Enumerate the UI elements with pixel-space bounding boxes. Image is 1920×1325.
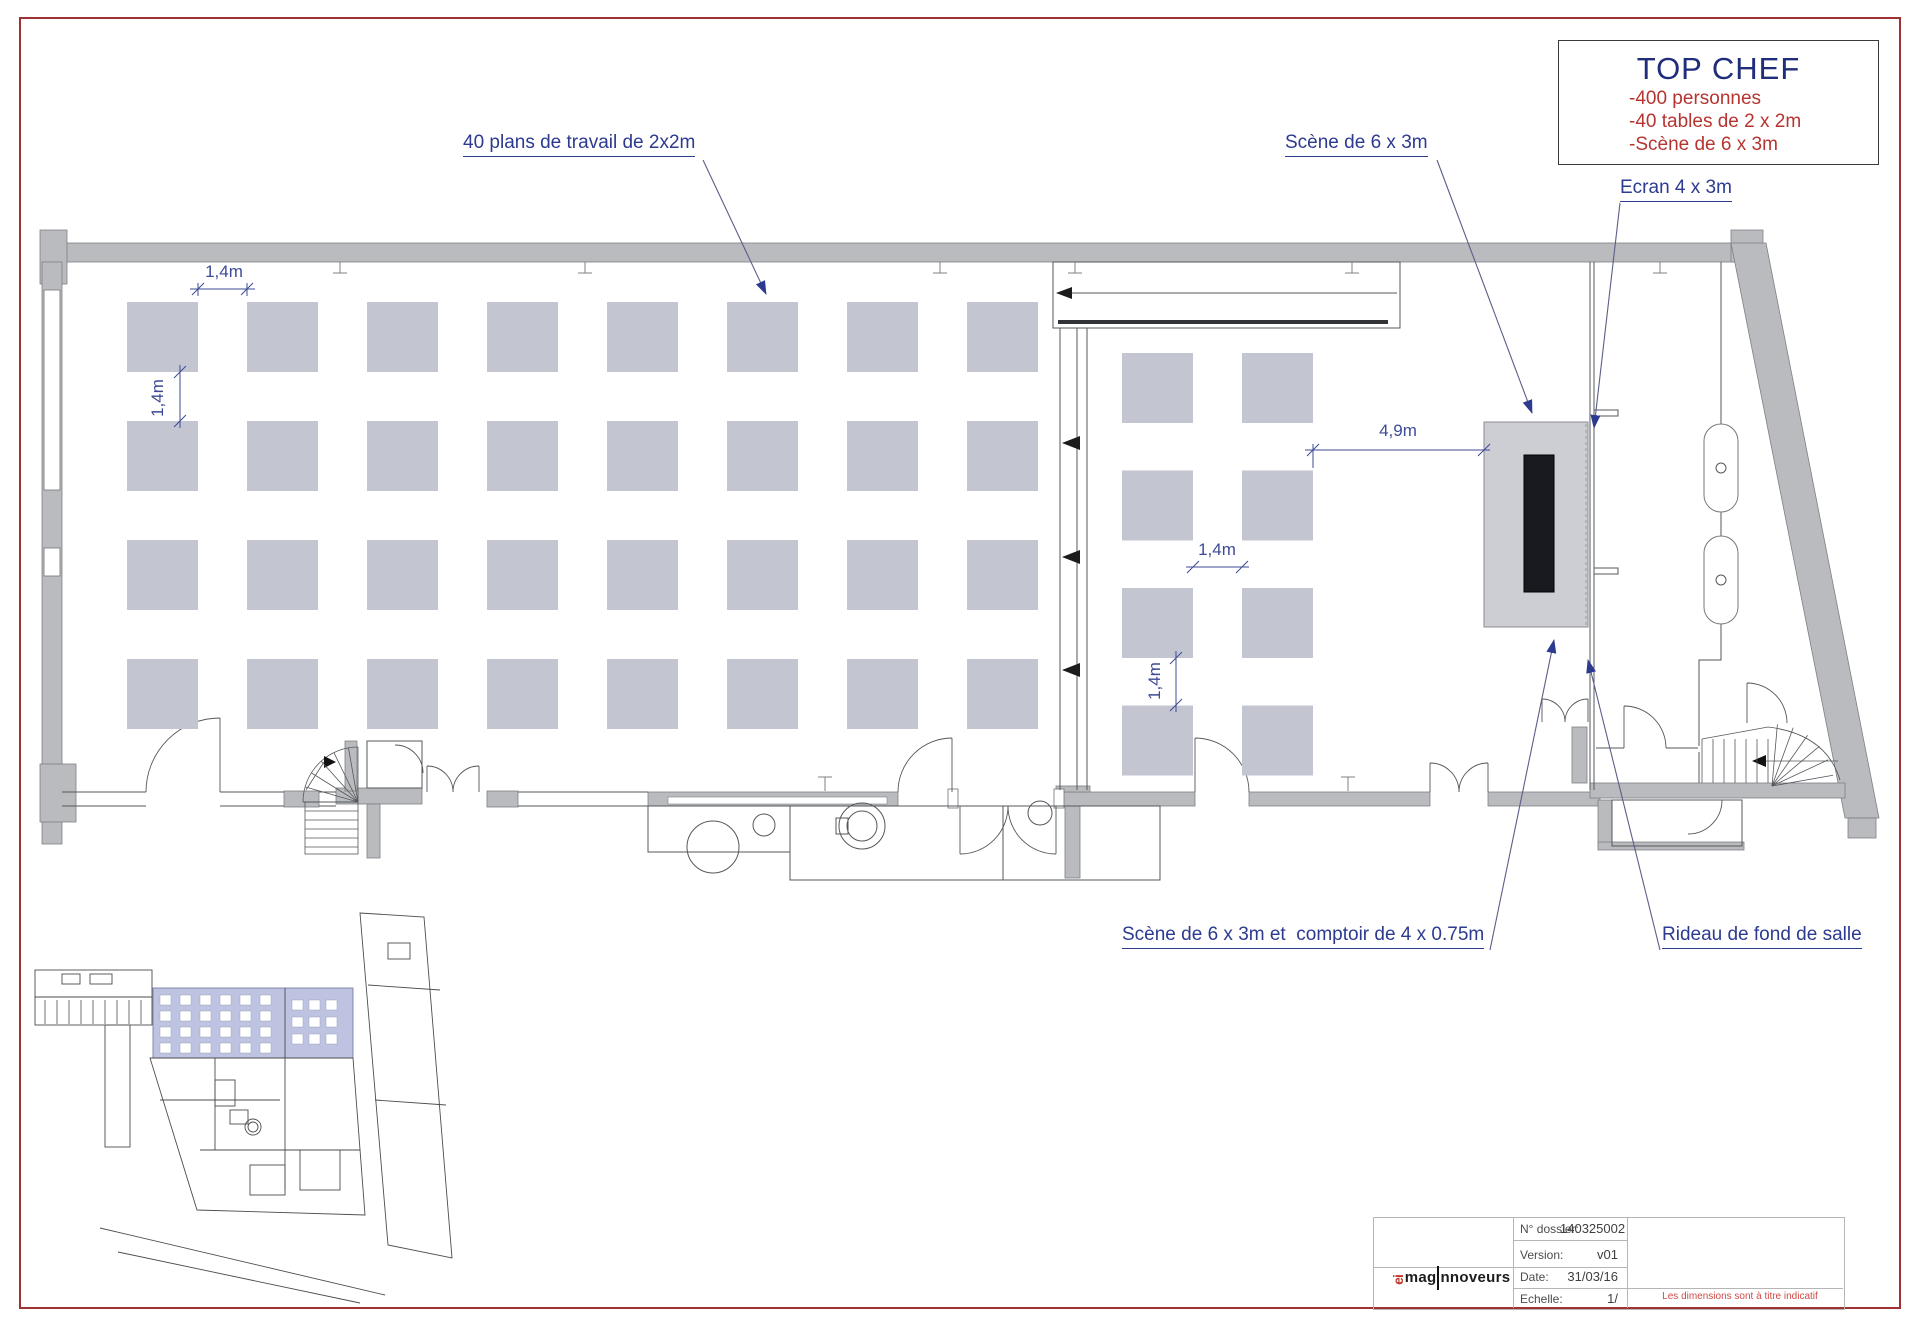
scale-value: 1/ xyxy=(1560,1291,1618,1306)
work-table xyxy=(127,302,198,372)
label-stage: Scène de 6 x 3m xyxy=(1285,132,1428,157)
stage xyxy=(1484,422,1588,627)
mini-table xyxy=(160,1011,171,1021)
wall-hanger xyxy=(1653,262,1667,273)
work-table xyxy=(127,540,198,610)
logo-text-right: nnoveurs xyxy=(1440,1269,1510,1286)
work-table xyxy=(367,659,438,729)
work-table xyxy=(487,540,558,610)
work-table xyxy=(727,659,798,729)
mini-table xyxy=(240,995,251,1005)
mini-table xyxy=(160,1027,171,1037)
mini-table xyxy=(220,995,231,1005)
dim-table-gap-v: 1,4m xyxy=(148,370,168,426)
work-table xyxy=(1122,471,1193,541)
mini-table xyxy=(240,1027,251,1037)
work-table xyxy=(487,659,558,729)
work-table xyxy=(247,302,318,372)
dim-mid-gap-h: 1,4m xyxy=(1191,540,1243,560)
mini-table xyxy=(260,995,271,1005)
work-table xyxy=(1242,353,1313,423)
work-table xyxy=(367,421,438,491)
dossier-value: 140325002 xyxy=(1560,1221,1618,1236)
work-table xyxy=(847,540,918,610)
mini-table xyxy=(292,1000,303,1010)
parking-ticks xyxy=(45,1000,141,1024)
scale-label: Echelle: xyxy=(1520,1292,1563,1306)
mini-table xyxy=(292,1034,303,1044)
work-table xyxy=(1242,706,1313,776)
logo-mark: ei xyxy=(1392,1275,1404,1285)
work-table xyxy=(487,421,558,491)
work-table xyxy=(487,302,558,372)
event-spec-line: -Scène de 6 x 3m xyxy=(1629,133,1878,156)
mini-table xyxy=(180,1027,191,1037)
title-block-divider xyxy=(1513,1217,1514,1308)
mini-table xyxy=(200,1043,211,1053)
screen-rect xyxy=(1524,455,1554,592)
logo-bar xyxy=(1437,1266,1439,1290)
version-label: Version: xyxy=(1520,1248,1563,1262)
wall-hanger xyxy=(818,777,832,791)
mini-table xyxy=(260,1011,271,1021)
work-table xyxy=(1122,706,1193,776)
version-value: v01 xyxy=(1560,1247,1618,1262)
work-table xyxy=(367,302,438,372)
mini-table xyxy=(260,1043,271,1053)
work-table xyxy=(967,659,1038,729)
mini-table xyxy=(326,1034,337,1044)
site-overview-plan xyxy=(35,913,452,1303)
mini-table xyxy=(220,1011,231,1021)
work-table xyxy=(727,540,798,610)
work-table xyxy=(1242,588,1313,658)
wall-hanger xyxy=(933,262,947,273)
dim-table-gap-h: 1,4m xyxy=(198,262,250,282)
work-table xyxy=(967,540,1038,610)
date-label: Date: xyxy=(1520,1270,1549,1284)
mini-table xyxy=(180,995,191,1005)
wall-hanger xyxy=(1341,777,1355,791)
work-table xyxy=(247,421,318,491)
mini-table xyxy=(326,1000,337,1010)
title-block-divider xyxy=(1627,1217,1628,1308)
work-table xyxy=(127,659,198,729)
dim-stage-clearance: 4,9m xyxy=(1372,421,1424,441)
work-table xyxy=(967,421,1038,491)
wall-hanger xyxy=(333,262,347,273)
mini-table xyxy=(240,1011,251,1021)
floor-plan-page: TOP CHEF -400 personnes -40 tables de 2 … xyxy=(0,0,1920,1325)
date-value: 31/03/16 xyxy=(1560,1269,1618,1284)
work-table xyxy=(607,302,678,372)
label-curtain: Rideau de fond de salle xyxy=(1662,924,1862,949)
label-screen: Ecran 4 x 3m xyxy=(1620,177,1732,202)
work-table xyxy=(727,421,798,491)
work-table xyxy=(727,302,798,372)
mini-table xyxy=(200,1027,211,1037)
company-logo: eimagnnoveurs xyxy=(1393,1266,1510,1286)
winder-stair xyxy=(1702,724,1840,786)
mini-table xyxy=(309,1000,320,1010)
work-table-grid xyxy=(127,302,1313,776)
dimensions-disclaimer-note: Les dimensions sont à titre indicatif xyxy=(1633,1291,1847,1302)
label-stage-counter: Scène de 6 x 3m et comptoir de 4 x 0.75m xyxy=(1122,924,1484,949)
event-spec-line: -40 tables de 2 x 2m xyxy=(1629,110,1878,133)
logo-text-left: mag xyxy=(1405,1269,1437,1286)
work-table xyxy=(607,421,678,491)
title-block-divider xyxy=(1513,1240,1627,1241)
mini-table xyxy=(160,995,171,1005)
work-table xyxy=(607,659,678,729)
work-table xyxy=(367,540,438,610)
work-table xyxy=(847,659,918,729)
mini-table xyxy=(292,1017,303,1027)
mini-table xyxy=(160,1043,171,1053)
work-table xyxy=(847,302,918,372)
work-table xyxy=(247,540,318,610)
work-table xyxy=(1122,588,1193,658)
work-table xyxy=(1242,471,1313,541)
mini-table xyxy=(309,1017,320,1027)
mini-table xyxy=(180,1011,191,1021)
dim-mid-gap-v: 1,4m xyxy=(1145,653,1165,709)
work-table xyxy=(127,421,198,491)
event-title: TOP CHEF xyxy=(1559,51,1878,87)
event-title-box: TOP CHEF -400 personnes -40 tables de 2 … xyxy=(1558,40,1879,165)
mini-table xyxy=(326,1017,337,1027)
mini-table xyxy=(200,995,211,1005)
title-block-divider xyxy=(1513,1288,1843,1289)
mini-table xyxy=(309,1034,320,1044)
mini-table xyxy=(180,1043,191,1053)
mini-table xyxy=(240,1043,251,1053)
mini-table xyxy=(220,1043,231,1053)
work-table xyxy=(847,421,918,491)
mini-table xyxy=(200,1011,211,1021)
wall-hanger xyxy=(578,262,592,273)
stair-tread xyxy=(1772,724,1777,786)
label-work-tables: 40 plans de travail de 2x2m xyxy=(463,132,695,157)
work-table xyxy=(607,540,678,610)
work-table xyxy=(1122,353,1193,423)
work-table xyxy=(967,302,1038,372)
mini-table xyxy=(220,1027,231,1037)
event-spec-line: -400 personnes xyxy=(1629,87,1878,110)
work-table xyxy=(247,659,318,729)
mini-table xyxy=(260,1027,271,1037)
